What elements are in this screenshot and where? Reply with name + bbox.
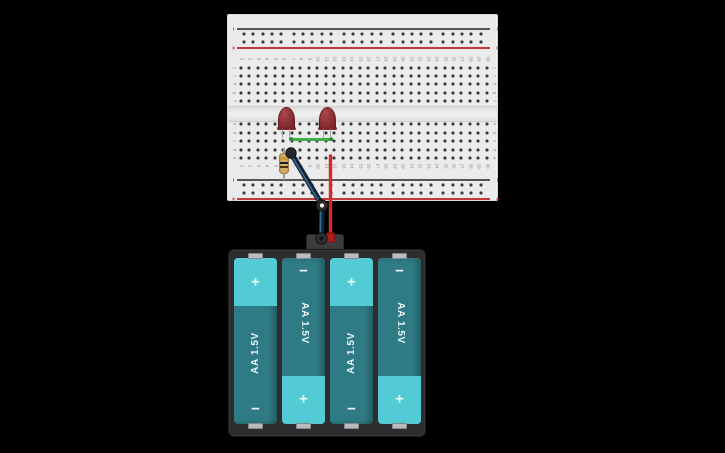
breadboard-hole[interactable]: [290, 75, 293, 78]
breadboard-hole[interactable]: [341, 131, 344, 134]
breadboard-rail-hole[interactable]: [429, 184, 432, 187]
breadboard-hole[interactable]: [350, 131, 353, 134]
breadboard-hole[interactable]: [409, 140, 412, 143]
breadboard-rail-hole[interactable]: [370, 41, 373, 44]
breadboard-rail-hole[interactable]: [411, 184, 414, 187]
breadboard-hole[interactable]: [358, 92, 361, 95]
breadboard-hole[interactable]: [426, 157, 429, 160]
breadboard-hole[interactable]: [240, 83, 243, 86]
breadboard-rail-hole[interactable]: [479, 33, 482, 36]
breadboard-rail-hole[interactable]: [392, 192, 395, 195]
breadboard-rail-hole[interactable]: [292, 192, 295, 195]
breadboard-hole[interactable]: [367, 140, 370, 143]
breadboard-hole[interactable]: [435, 100, 438, 103]
breadboard-hole[interactable]: [485, 75, 488, 78]
breadboard-hole[interactable]: [273, 123, 276, 126]
breadboard-rail-hole[interactable]: [479, 41, 482, 44]
breadboard-hole[interactable]: [409, 92, 412, 95]
breadboard-hole[interactable]: [468, 83, 471, 86]
breadboard-hole[interactable]: [468, 92, 471, 95]
breadboard-rail-hole[interactable]: [451, 33, 454, 36]
breadboard-rail-hole[interactable]: [261, 33, 264, 36]
breadboard-hole[interactable]: [350, 83, 353, 86]
breadboard-hole[interactable]: [409, 67, 412, 70]
breadboard-hole[interactable]: [316, 75, 319, 78]
breadboard-rail-hole[interactable]: [330, 33, 333, 36]
breadboard-hole[interactable]: [418, 140, 421, 143]
breadboard-hole[interactable]: [384, 157, 387, 160]
breadboard-hole[interactable]: [367, 131, 370, 134]
breadboard-hole[interactable]: [350, 75, 353, 78]
breadboard-hole[interactable]: [341, 83, 344, 86]
breadboard-rail-hole[interactable]: [302, 184, 305, 187]
breadboard-hole[interactable]: [435, 67, 438, 70]
breadboard-hole[interactable]: [358, 67, 361, 70]
breadboard-hole[interactable]: [460, 75, 463, 78]
breadboard-hole[interactable]: [477, 92, 480, 95]
breadboard-hole[interactable]: [477, 148, 480, 151]
breadboard-rail-hole[interactable]: [460, 33, 463, 36]
breadboard-hole[interactable]: [265, 123, 268, 126]
breadboard-hole[interactable]: [341, 67, 344, 70]
red-led-right[interactable]: [319, 107, 336, 138]
breadboard-rail-hole[interactable]: [470, 184, 473, 187]
breadboard-hole[interactable]: [290, 83, 293, 86]
breadboard-hole[interactable]: [341, 157, 344, 160]
breadboard-rail-hole[interactable]: [302, 33, 305, 36]
breadboard-hole[interactable]: [477, 100, 480, 103]
breadboard-hole[interactable]: [477, 140, 480, 143]
breadboard-hole[interactable]: [299, 67, 302, 70]
breadboard-hole[interactable]: [341, 148, 344, 151]
breadboard-hole[interactable]: [367, 75, 370, 78]
breadboard-hole[interactable]: [248, 148, 251, 151]
breadboard-hole[interactable]: [452, 148, 455, 151]
breadboard-hole[interactable]: [299, 131, 302, 134]
breadboard-hole[interactable]: [341, 123, 344, 126]
breadboard-hole[interactable]: [350, 67, 353, 70]
breadboard-rail-hole[interactable]: [311, 33, 314, 36]
breadboard-hole[interactable]: [358, 100, 361, 103]
breadboard-hole[interactable]: [375, 100, 378, 103]
breadboard-hole[interactable]: [477, 83, 480, 86]
breadboard-hole[interactable]: [375, 140, 378, 143]
breadboard-rail-hole[interactable]: [342, 192, 345, 195]
breadboard-hole[interactable]: [333, 92, 336, 95]
breadboard-hole[interactable]: [375, 123, 378, 126]
breadboard-rail-hole[interactable]: [451, 41, 454, 44]
breadboard-hole[interactable]: [477, 75, 480, 78]
breadboard-hole[interactable]: [418, 131, 421, 134]
breadboard-rail-hole[interactable]: [342, 41, 345, 44]
breadboard-hole[interactable]: [409, 100, 412, 103]
breadboard-hole[interactable]: [426, 148, 429, 151]
breadboard-hole[interactable]: [273, 75, 276, 78]
breadboard-hole[interactable]: [392, 100, 395, 103]
breadboard-hole[interactable]: [256, 100, 259, 103]
breadboard-hole[interactable]: [452, 131, 455, 134]
breadboard-rail-hole[interactable]: [351, 184, 354, 187]
breadboard-hole[interactable]: [418, 83, 421, 86]
breadboard-rail-hole[interactable]: [243, 41, 246, 44]
breadboard-hole[interactable]: [290, 67, 293, 70]
green-jumper-wire[interactable]: [290, 138, 332, 141]
breadboard-rail-hole[interactable]: [392, 41, 395, 44]
breadboard-hole[interactable]: [282, 100, 285, 103]
breadboard-hole[interactable]: [460, 92, 463, 95]
breadboard-hole[interactable]: [307, 67, 310, 70]
breadboard-rail-hole[interactable]: [320, 192, 323, 195]
breadboard-hole[interactable]: [418, 148, 421, 151]
breadboard-hole[interactable]: [256, 67, 259, 70]
breadboard-hole[interactable]: [299, 148, 302, 151]
breadboard-hole[interactable]: [350, 100, 353, 103]
breadboard-hole[interactable]: [468, 148, 471, 151]
breadboard-hole[interactable]: [256, 83, 259, 86]
breadboard-hole[interactable]: [426, 100, 429, 103]
breadboard-rail-hole[interactable]: [420, 184, 423, 187]
breadboard-rail-hole[interactable]: [479, 184, 482, 187]
breadboard-hole[interactable]: [452, 83, 455, 86]
breadboard-hole[interactable]: [273, 140, 276, 143]
breadboard-hole[interactable]: [443, 75, 446, 78]
breadboard-hole[interactable]: [265, 100, 268, 103]
breadboard-hole[interactable]: [350, 157, 353, 160]
breadboard-hole[interactable]: [485, 92, 488, 95]
breadboard-hole[interactable]: [460, 140, 463, 143]
breadboard-rail-hole[interactable]: [411, 41, 414, 44]
breadboard-hole[interactable]: [240, 131, 243, 134]
breadboard-hole[interactable]: [418, 67, 421, 70]
breadboard-hole[interactable]: [240, 123, 243, 126]
breadboard-hole[interactable]: [392, 140, 395, 143]
breadboard-hole[interactable]: [435, 131, 438, 134]
breadboard-hole[interactable]: [273, 131, 276, 134]
breadboard-hole[interactable]: [460, 100, 463, 103]
breadboard-hole[interactable]: [375, 148, 378, 151]
breadboard-rail-hole[interactable]: [351, 33, 354, 36]
breadboard-rail-hole[interactable]: [401, 192, 404, 195]
breadboard-hole[interactable]: [418, 92, 421, 95]
breadboard-hole[interactable]: [485, 140, 488, 143]
breadboard-hole[interactable]: [401, 140, 404, 143]
red-led-left[interactable]: [278, 107, 295, 138]
breadboard-hole[interactable]: [240, 157, 243, 160]
breadboard-hole[interactable]: [392, 75, 395, 78]
breadboard-hole[interactable]: [256, 140, 259, 143]
breadboard-rail-hole[interactable]: [442, 184, 445, 187]
breadboard-hole[interactable]: [333, 157, 336, 160]
breadboard-hole[interactable]: [460, 67, 463, 70]
breadboard-hole[interactable]: [401, 83, 404, 86]
breadboard-hole[interactable]: [401, 123, 404, 126]
breadboard-hole[interactable]: [240, 100, 243, 103]
breadboard-hole[interactable]: [307, 148, 310, 151]
breadboard-hole[interactable]: [452, 100, 455, 103]
breadboard-hole[interactable]: [240, 67, 243, 70]
breadboard-rail-hole[interactable]: [401, 184, 404, 187]
breadboard-hole[interactable]: [452, 140, 455, 143]
breadboard-hole[interactable]: [443, 67, 446, 70]
breadboard-rail-hole[interactable]: [252, 33, 255, 36]
breadboard-hole[interactable]: [256, 92, 259, 95]
breadboard-hole[interactable]: [265, 140, 268, 143]
breadboard-hole[interactable]: [367, 83, 370, 86]
breadboard-rail-hole[interactable]: [451, 192, 454, 195]
breadboard-rail-hole[interactable]: [330, 184, 333, 187]
breadboard-hole[interactable]: [333, 67, 336, 70]
breadboard-rail-hole[interactable]: [270, 192, 273, 195]
breadboard-hole[interactable]: [282, 92, 285, 95]
breadboard-hole[interactable]: [401, 131, 404, 134]
breadboard-hole[interactable]: [375, 67, 378, 70]
breadboard-hole[interactable]: [316, 148, 319, 151]
breadboard-rail-hole[interactable]: [261, 184, 264, 187]
breadboard-hole[interactable]: [485, 83, 488, 86]
breadboard[interactable]: −−++−−++11223344556677889910101111121213…: [227, 14, 498, 201]
breadboard-hole[interactable]: [384, 131, 387, 134]
breadboard-hole[interactable]: [248, 157, 251, 160]
breadboard-hole[interactable]: [367, 157, 370, 160]
breadboard-hole[interactable]: [273, 67, 276, 70]
breadboard-hole[interactable]: [324, 148, 327, 151]
breadboard-hole[interactable]: [468, 67, 471, 70]
breadboard-hole[interactable]: [452, 75, 455, 78]
breadboard-hole[interactable]: [248, 92, 251, 95]
breadboard-hole[interactable]: [299, 100, 302, 103]
breadboard-hole[interactable]: [384, 83, 387, 86]
breadboard-rail-hole[interactable]: [292, 184, 295, 187]
breadboard-hole[interactable]: [307, 157, 310, 160]
breadboard-rail-hole[interactable]: [270, 41, 273, 44]
breadboard-hole[interactable]: [401, 67, 404, 70]
breadboard-hole[interactable]: [350, 140, 353, 143]
breadboard-hole[interactable]: [367, 123, 370, 126]
breadboard-hole[interactable]: [282, 83, 285, 86]
breadboard-hole[interactable]: [392, 67, 395, 70]
breadboard-hole[interactable]: [409, 123, 412, 126]
breadboard-hole[interactable]: [248, 75, 251, 78]
breadboard-hole[interactable]: [273, 92, 276, 95]
breadboard-rail-hole[interactable]: [243, 184, 246, 187]
breadboard-rail-hole[interactable]: [429, 33, 432, 36]
breadboard-rail-hole[interactable]: [420, 192, 423, 195]
breadboard-hole[interactable]: [248, 140, 251, 143]
breadboard-hole[interactable]: [358, 75, 361, 78]
breadboard-hole[interactable]: [240, 75, 243, 78]
breadboard-hole[interactable]: [443, 92, 446, 95]
breadboard-hole[interactable]: [265, 67, 268, 70]
breadboard-hole[interactable]: [392, 131, 395, 134]
breadboard-hole[interactable]: [375, 83, 378, 86]
breadboard-hole[interactable]: [435, 123, 438, 126]
breadboard-rail-hole[interactable]: [351, 192, 354, 195]
breadboard-rail-hole[interactable]: [479, 192, 482, 195]
breadboard-hole[interactable]: [485, 67, 488, 70]
breadboard-hole[interactable]: [435, 75, 438, 78]
breadboard-hole[interactable]: [384, 67, 387, 70]
breadboard-hole[interactable]: [418, 75, 421, 78]
breadboard-rail-hole[interactable]: [342, 33, 345, 36]
breadboard-hole[interactable]: [240, 140, 243, 143]
breadboard-rail-hole[interactable]: [470, 33, 473, 36]
breadboard-hole[interactable]: [375, 131, 378, 134]
breadboard-hole[interactable]: [384, 100, 387, 103]
breadboard-rail-hole[interactable]: [280, 41, 283, 44]
breadboard-hole[interactable]: [426, 140, 429, 143]
breadboard-hole[interactable]: [392, 148, 395, 151]
breadboard-rail-hole[interactable]: [401, 33, 404, 36]
breadboard-rail-hole[interactable]: [442, 192, 445, 195]
breadboard-hole[interactable]: [367, 92, 370, 95]
breadboard-hole[interactable]: [443, 148, 446, 151]
breadboard-hole[interactable]: [426, 67, 429, 70]
breadboard-hole[interactable]: [299, 75, 302, 78]
breadboard-hole[interactable]: [384, 140, 387, 143]
breadboard-hole[interactable]: [401, 92, 404, 95]
breadboard-hole[interactable]: [443, 140, 446, 143]
breadboard-hole[interactable]: [256, 75, 259, 78]
breadboard-hole[interactable]: [409, 157, 412, 160]
breadboard-hole[interactable]: [367, 67, 370, 70]
breadboard-rail-hole[interactable]: [451, 184, 454, 187]
breadboard-rail-hole[interactable]: [252, 192, 255, 195]
breadboard-rail-hole[interactable]: [379, 41, 382, 44]
breadboard-rail-hole[interactable]: [320, 41, 323, 44]
breadboard-hole[interactable]: [477, 67, 480, 70]
breadboard-hole[interactable]: [273, 83, 276, 86]
breadboard-rail-hole[interactable]: [392, 184, 395, 187]
breadboard-hole[interactable]: [240, 148, 243, 151]
breadboard-hole[interactable]: [468, 140, 471, 143]
breadboard-hole[interactable]: [435, 148, 438, 151]
black-wire-bend-node[interactable]: [316, 200, 327, 211]
breadboard-hole[interactable]: [392, 123, 395, 126]
breadboard-hole[interactable]: [375, 75, 378, 78]
breadboard-hole[interactable]: [341, 140, 344, 143]
breadboard-hole[interactable]: [460, 83, 463, 86]
breadboard-hole[interactable]: [384, 75, 387, 78]
breadboard-hole[interactable]: [435, 140, 438, 143]
breadboard-rail-hole[interactable]: [470, 41, 473, 44]
breadboard-rail-hole[interactable]: [280, 184, 283, 187]
breadboard-hole[interactable]: [468, 131, 471, 134]
breadboard-hole[interactable]: [375, 92, 378, 95]
breadboard-rail-hole[interactable]: [302, 41, 305, 44]
breadboard-rail-hole[interactable]: [379, 192, 382, 195]
breadboard-rail-hole[interactable]: [420, 41, 423, 44]
breadboard-hole[interactable]: [477, 131, 480, 134]
breadboard-hole[interactable]: [384, 148, 387, 151]
breadboard-hole[interactable]: [485, 123, 488, 126]
breadboard-hole[interactable]: [468, 123, 471, 126]
breadboard-hole[interactable]: [409, 83, 412, 86]
breadboard-hole[interactable]: [273, 100, 276, 103]
breadboard-hole[interactable]: [426, 83, 429, 86]
breadboard-hole[interactable]: [460, 123, 463, 126]
breadboard-hole[interactable]: [358, 83, 361, 86]
breadboard-hole[interactable]: [256, 157, 259, 160]
breadboard-hole[interactable]: [316, 100, 319, 103]
breadboard-rail-hole[interactable]: [311, 184, 314, 187]
breadboard-hole[interactable]: [485, 131, 488, 134]
breadboard-hole[interactable]: [460, 157, 463, 160]
breadboard-rail-hole[interactable]: [379, 33, 382, 36]
breadboard-hole[interactable]: [443, 100, 446, 103]
breadboard-hole[interactable]: [468, 75, 471, 78]
breadboard-hole[interactable]: [418, 100, 421, 103]
breadboard-hole[interactable]: [307, 100, 310, 103]
breadboard-hole[interactable]: [324, 100, 327, 103]
breadboard-rail-hole[interactable]: [261, 192, 264, 195]
breadboard-hole[interactable]: [316, 157, 319, 160]
breadboard-rail-hole[interactable]: [330, 192, 333, 195]
breadboard-hole[interactable]: [435, 83, 438, 86]
breadboard-rail-hole[interactable]: [292, 41, 295, 44]
breadboard-hole[interactable]: [307, 92, 310, 95]
breadboard-hole[interactable]: [341, 92, 344, 95]
breadboard-hole[interactable]: [265, 83, 268, 86]
breadboard-hole[interactable]: [307, 131, 310, 134]
breadboard-hole[interactable]: [409, 148, 412, 151]
breadboard-hole[interactable]: [418, 123, 421, 126]
breadboard-hole[interactable]: [341, 75, 344, 78]
breadboard-hole[interactable]: [256, 148, 259, 151]
breadboard-rail-hole[interactable]: [392, 33, 395, 36]
breadboard-hole[interactable]: [248, 83, 251, 86]
breadboard-rail-hole[interactable]: [320, 33, 323, 36]
breadboard-rail-hole[interactable]: [442, 41, 445, 44]
breadboard-hole[interactable]: [485, 100, 488, 103]
breadboard-hole[interactable]: [426, 123, 429, 126]
breadboard-rail-hole[interactable]: [361, 33, 364, 36]
breadboard-rail-hole[interactable]: [379, 184, 382, 187]
breadboard-hole[interactable]: [401, 75, 404, 78]
breadboard-hole[interactable]: [341, 100, 344, 103]
breadboard-hole[interactable]: [435, 157, 438, 160]
breadboard-hole[interactable]: [375, 157, 378, 160]
breadboard-hole[interactable]: [452, 123, 455, 126]
breadboard-hole[interactable]: [333, 140, 336, 143]
breadboard-hole[interactable]: [282, 67, 285, 70]
breadboard-hole[interactable]: [290, 92, 293, 95]
resistor[interactable]: [276, 148, 292, 180]
breadboard-hole[interactable]: [426, 75, 429, 78]
breadboard-hole[interactable]: [299, 83, 302, 86]
breadboard-rail-hole[interactable]: [351, 41, 354, 44]
breadboard-hole[interactable]: [477, 157, 480, 160]
breadboard-rail-hole[interactable]: [411, 192, 414, 195]
breadboard-hole[interactable]: [401, 157, 404, 160]
breadboard-hole[interactable]: [265, 75, 268, 78]
breadboard-rail-hole[interactable]: [270, 33, 273, 36]
breadboard-rail-hole[interactable]: [361, 192, 364, 195]
breadboard-hole[interactable]: [350, 123, 353, 126]
breadboard-hole[interactable]: [350, 92, 353, 95]
breadboard-hole[interactable]: [409, 75, 412, 78]
breadboard-hole[interactable]: [248, 67, 251, 70]
breadboard-hole[interactable]: [443, 83, 446, 86]
breadboard-hole[interactable]: [307, 75, 310, 78]
breadboard-hole[interactable]: [409, 131, 412, 134]
breadboard-rail-hole[interactable]: [460, 192, 463, 195]
breadboard-hole[interactable]: [485, 148, 488, 151]
breadboard-hole[interactable]: [299, 157, 302, 160]
breadboard-hole[interactable]: [299, 123, 302, 126]
breadboard-hole[interactable]: [358, 157, 361, 160]
breadboard-rail-hole[interactable]: [243, 192, 246, 195]
breadboard-hole[interactable]: [358, 123, 361, 126]
